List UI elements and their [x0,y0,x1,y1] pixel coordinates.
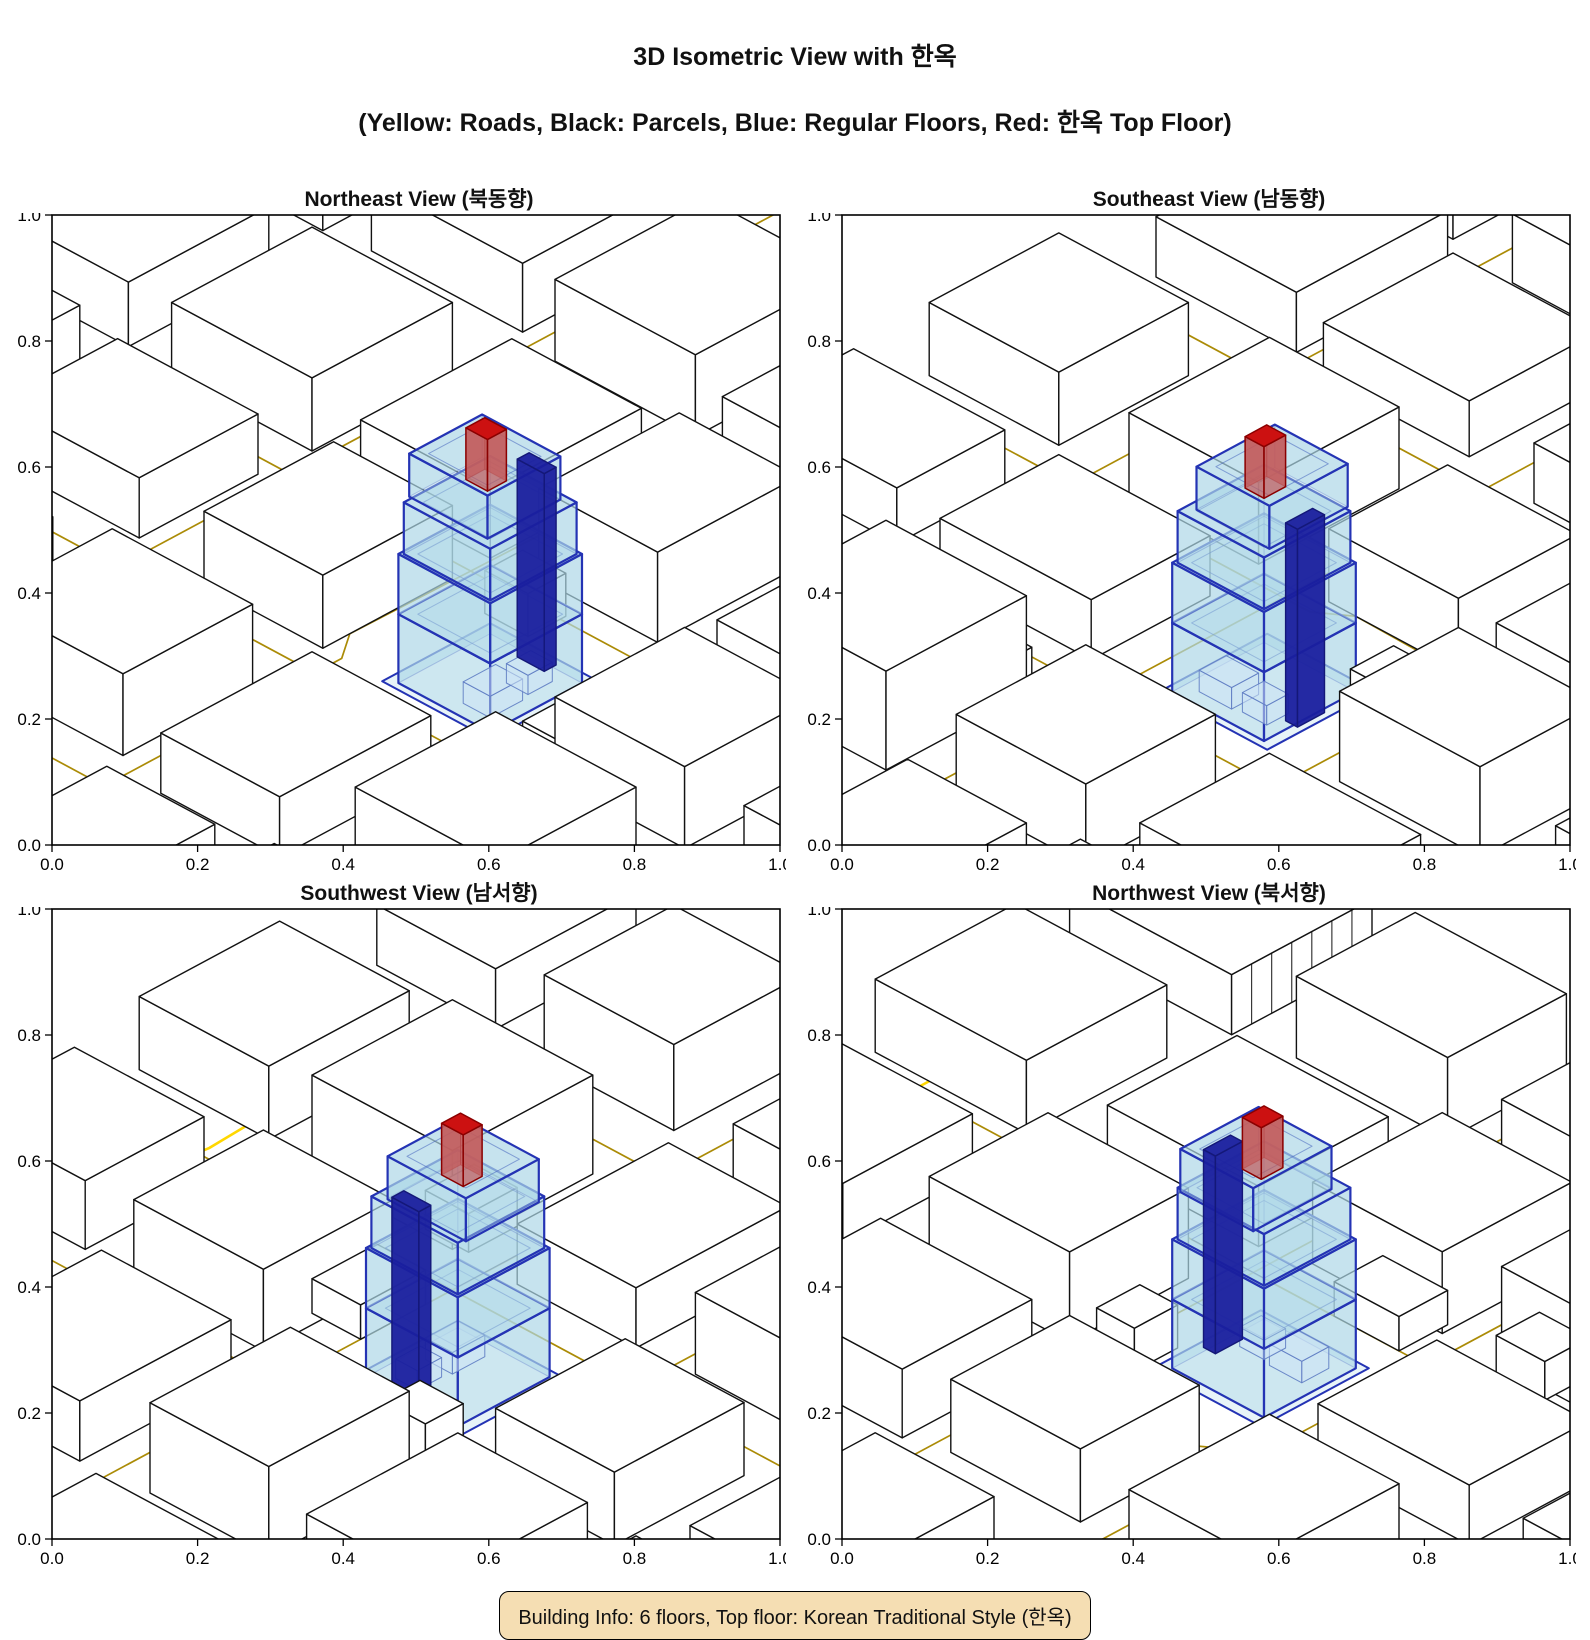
x-tick-label: 0.0 [830,855,854,874]
x-tick-label: 0.6 [1267,1549,1291,1568]
subplot-northwest: Northwest View (북서향) 0.00.00.20.20.40.40… [804,881,1576,1575]
building [804,1095,805,1333]
y-tick-label: 0.8 [17,1026,41,1045]
y-tick-label: 0.0 [807,836,831,855]
isometric-scene-northeast: 0.00.00.20.20.40.40.60.60.80.81.01.0 [14,213,786,881]
x-tick-label: 0.4 [331,1549,355,1568]
y-tick-label: 1.0 [17,213,41,225]
subplot-northeast: Northeast View (북동향) 0.00.00.20.20.40.40… [14,187,786,881]
isometric-scene-northwest: 0.00.00.20.20.40.40.60.60.80.81.01.0 [804,907,1576,1575]
building [804,1316,832,1540]
y-tick-label: 0.8 [807,332,831,351]
building [145,844,404,882]
x-tick-label: 0.4 [1121,1549,1145,1568]
y-tick-label: 0.0 [807,1530,831,1549]
subplot-title-northwest: Northwest View (북서향) [842,881,1576,907]
subplot-southwest: Southwest View (남서향) 0.00.00.20.20.40.40… [14,881,786,1575]
y-tick-label: 0.8 [17,332,41,351]
figure-title-line2: (Yellow: Roads, Black: Parcels, Blue: Re… [0,107,1590,140]
y-tick-label: 0.2 [807,710,831,729]
y-tick-label: 0.6 [17,1152,41,1171]
x-tick-label: 0.8 [623,855,647,874]
subplot-southeast: Southeast View (남동향) 0.00.00.20.20.40.40… [804,187,1576,881]
x-tick-label: 0.8 [623,1549,647,1568]
x-tick-label: 0.4 [331,855,355,874]
x-tick-label: 0.2 [976,1549,1000,1568]
figure-title: 3D Isometric View with 한옥 (Yellow: Roads… [0,0,1590,173]
buildings [14,213,786,881]
building [539,848,786,881]
scene-nw [804,907,1576,1575]
y-tick-label: 0.2 [17,710,41,729]
y-tick-label: 0.2 [17,1404,41,1423]
x-tick-label: 0.2 [186,855,210,874]
x-tick-label: 0.0 [830,1549,854,1568]
x-tick-label: 0.6 [477,855,501,874]
subplot-title-southeast: Southeast View (남동향) [842,187,1576,213]
y-tick-label: 0.4 [17,1278,41,1297]
y-tick-label: 1.0 [807,213,831,225]
y-tick-label: 0.6 [807,1152,831,1171]
building [1340,1542,1576,1575]
x-tick-label: 1.0 [1558,855,1576,874]
y-tick-label: 0.4 [17,584,41,603]
isometric-scene-southwest: 0.00.00.20.20.40.40.60.60.80.81.01.0 [14,907,786,1575]
y-tick-label: 0.6 [807,458,831,477]
y-tick-label: 0.0 [17,1530,41,1549]
x-tick-label: 1.0 [768,1549,786,1568]
building [14,447,53,651]
building [804,420,805,645]
y-tick-label: 0.8 [807,1026,831,1045]
figure: 3D Isometric View with 한옥 (Yellow: Roads… [0,0,1590,1560]
subplot-title-northeast: Northeast View (북동향) [52,187,786,213]
buildings [804,907,1576,1575]
y-tick-label: 0.6 [17,458,41,477]
x-tick-label: 0.2 [186,1549,210,1568]
x-tick-label: 0.8 [1413,1549,1437,1568]
x-tick-label: 0.4 [1121,855,1145,874]
x-tick-label: 0.6 [477,1549,501,1568]
y-tick-label: 0.2 [807,1404,831,1423]
x-tick-label: 0.6 [1267,855,1291,874]
info-box-row: Building Info: 6 floors, Top floor: Kore… [0,1591,1590,1640]
building-info-box: Building Info: 6 floors, Top floor: Kore… [499,1591,1090,1640]
building [804,645,821,863]
building [14,651,31,863]
subplot-grid: Northeast View (북동향) 0.00.00.20.20.40.40… [0,187,1590,1575]
isometric-scene-southeast: 0.00.00.20.20.40.40.60.60.80.81.01.0 [804,213,1576,881]
x-tick-label: 1.0 [768,855,786,874]
y-tick-label: 1.0 [807,907,831,919]
y-tick-label: 0.4 [807,1278,831,1297]
x-tick-label: 0.0 [40,1549,64,1568]
y-tick-label: 1.0 [17,907,41,919]
scene-ne [14,213,786,881]
x-tick-label: 0.8 [1413,855,1437,874]
figure-title-line1: 3D Isometric View with 한옥 [0,41,1590,74]
x-tick-label: 0.0 [40,855,64,874]
building [1361,854,1576,882]
x-tick-label: 0.2 [976,855,1000,874]
building [929,1547,1204,1575]
x-tick-label: 1.0 [1558,1549,1576,1568]
y-tick-label: 0.0 [17,836,41,855]
y-tick-label: 0.4 [807,584,831,603]
subplot-title-southwest: Southwest View (남서향) [52,881,786,907]
